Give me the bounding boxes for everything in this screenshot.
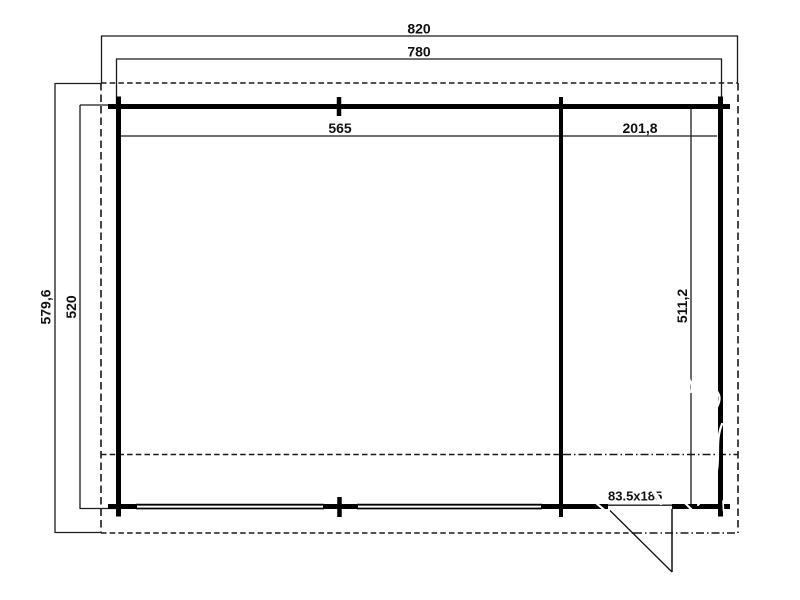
svg-text:520: 520 [63, 295, 79, 319]
svg-text:820: 820 [407, 21, 431, 37]
svg-text:780: 780 [407, 44, 431, 60]
svg-text:579,6: 579,6 [38, 289, 54, 324]
svg-text:511,2: 511,2 [674, 289, 690, 323]
svg-text:565: 565 [328, 120, 352, 136]
svg-text:201,8: 201,8 [622, 120, 657, 136]
